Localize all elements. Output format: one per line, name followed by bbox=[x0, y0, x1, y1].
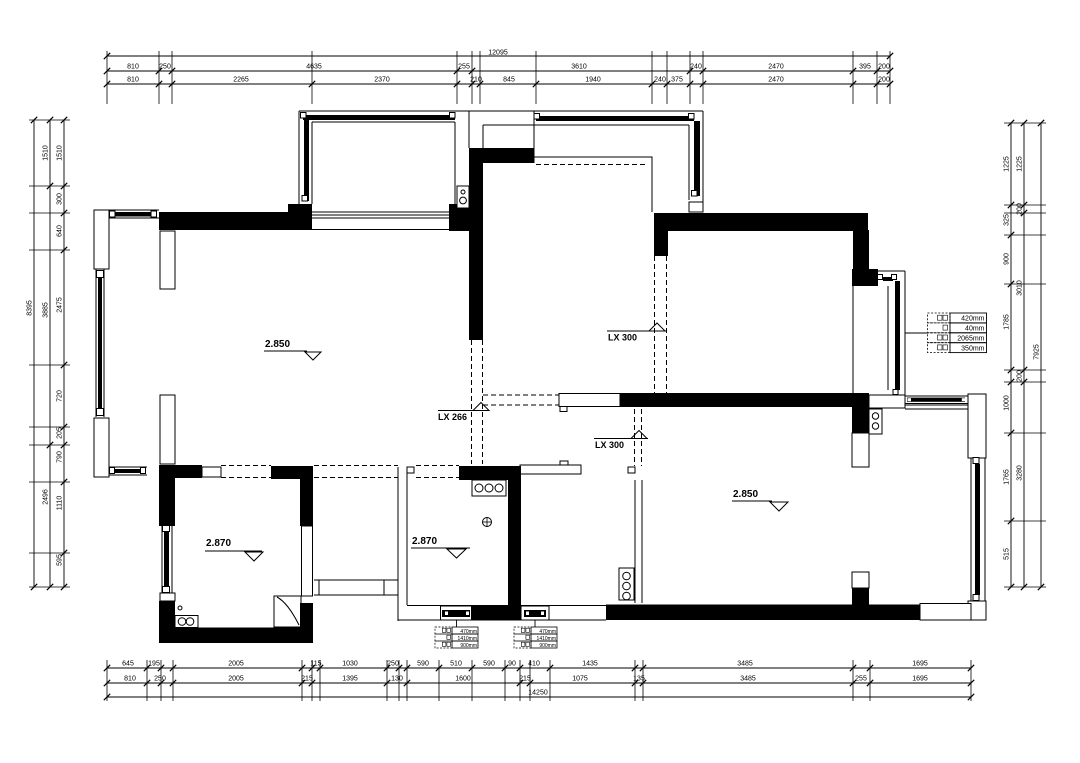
svg-text:1695: 1695 bbox=[912, 661, 928, 668]
svg-text:2496: 2496 bbox=[43, 489, 50, 505]
svg-text:1765: 1765 bbox=[1004, 469, 1011, 485]
svg-text:215: 215 bbox=[301, 676, 313, 683]
svg-text:845: 845 bbox=[503, 77, 515, 84]
svg-text:250: 250 bbox=[387, 661, 399, 668]
svg-text:12095: 12095 bbox=[488, 50, 508, 57]
svg-text:3010: 3010 bbox=[1017, 280, 1024, 296]
svg-text:410: 410 bbox=[528, 661, 540, 668]
svg-text:LX 300: LX 300 bbox=[608, 333, 637, 343]
svg-text:640: 640 bbox=[57, 225, 64, 237]
svg-text:900mm: 900mm bbox=[539, 643, 556, 649]
svg-text:2265: 2265 bbox=[233, 77, 249, 84]
svg-text:90: 90 bbox=[508, 661, 516, 668]
svg-text:900: 900 bbox=[1004, 253, 1011, 265]
svg-text:1785: 1785 bbox=[1004, 314, 1011, 330]
svg-text:115: 115 bbox=[310, 661, 321, 668]
svg-text:4635: 4635 bbox=[306, 64, 322, 71]
svg-text:2005: 2005 bbox=[228, 676, 244, 683]
svg-text:3280: 3280 bbox=[1017, 465, 1024, 481]
svg-text:1075: 1075 bbox=[572, 676, 588, 683]
svg-text:250: 250 bbox=[154, 676, 166, 683]
svg-text:200: 200 bbox=[1017, 370, 1024, 382]
svg-text:810: 810 bbox=[127, 64, 139, 71]
svg-text:215: 215 bbox=[519, 676, 531, 683]
svg-text:1395: 1395 bbox=[342, 676, 358, 683]
svg-text:135: 135 bbox=[633, 676, 645, 683]
svg-text:3610: 3610 bbox=[571, 64, 587, 71]
svg-text:1940: 1940 bbox=[585, 77, 601, 84]
svg-text:810: 810 bbox=[124, 676, 136, 683]
svg-text:3885: 3885 bbox=[43, 302, 50, 318]
svg-text:205: 205 bbox=[57, 427, 64, 439]
svg-text:420mm: 420mm bbox=[961, 316, 985, 323]
svg-text:375: 375 bbox=[671, 77, 683, 84]
svg-text:1600: 1600 bbox=[455, 676, 471, 683]
svg-text:14250: 14250 bbox=[528, 690, 548, 697]
svg-text:1435: 1435 bbox=[582, 661, 598, 668]
svg-text:40mm: 40mm bbox=[965, 326, 985, 333]
svg-text:255: 255 bbox=[855, 676, 867, 683]
svg-text:200: 200 bbox=[1017, 203, 1024, 215]
svg-text:2.850: 2.850 bbox=[265, 339, 290, 350]
svg-text:1030: 1030 bbox=[342, 661, 358, 668]
svg-text:350mm: 350mm bbox=[961, 345, 985, 352]
svg-text:2065mm: 2065mm bbox=[957, 335, 984, 342]
svg-text:1000: 1000 bbox=[1004, 395, 1011, 411]
svg-text:2475: 2475 bbox=[57, 297, 64, 313]
svg-text:900mm: 900mm bbox=[460, 643, 477, 649]
svg-text:210: 210 bbox=[470, 77, 482, 84]
svg-text:300: 300 bbox=[57, 193, 64, 205]
svg-text:2.850: 2.850 bbox=[733, 489, 758, 500]
svg-text:720: 720 bbox=[57, 390, 64, 402]
svg-text:240: 240 bbox=[654, 77, 666, 84]
svg-text:195: 195 bbox=[148, 661, 160, 668]
svg-text:LX 266: LX 266 bbox=[438, 412, 467, 422]
svg-text:515: 515 bbox=[1004, 548, 1011, 560]
svg-text:200: 200 bbox=[878, 77, 890, 84]
svg-text:1225: 1225 bbox=[1004, 156, 1011, 172]
svg-text:2470: 2470 bbox=[768, 64, 784, 71]
svg-text:2370: 2370 bbox=[374, 77, 390, 84]
svg-text:250: 250 bbox=[159, 64, 171, 71]
svg-text:1110: 1110 bbox=[57, 496, 64, 511]
svg-text:130: 130 bbox=[391, 676, 403, 683]
svg-text:590: 590 bbox=[417, 661, 429, 668]
svg-text:LX 300: LX 300 bbox=[595, 440, 624, 450]
svg-text:1225: 1225 bbox=[1017, 156, 1024, 172]
svg-text:2470: 2470 bbox=[768, 77, 784, 84]
svg-text:1510: 1510 bbox=[57, 145, 64, 161]
svg-text:1510: 1510 bbox=[43, 145, 50, 161]
svg-text:2.870: 2.870 bbox=[206, 538, 231, 549]
svg-text:810: 810 bbox=[127, 77, 139, 84]
svg-text:2005: 2005 bbox=[228, 661, 244, 668]
svg-text:325: 325 bbox=[1004, 214, 1011, 226]
svg-text:3485: 3485 bbox=[737, 661, 753, 668]
svg-text:510: 510 bbox=[450, 661, 462, 668]
svg-text:8395: 8395 bbox=[27, 300, 34, 316]
svg-text:240: 240 bbox=[690, 64, 702, 71]
svg-text:590: 590 bbox=[483, 661, 495, 668]
svg-text:645: 645 bbox=[122, 661, 134, 668]
svg-text:255: 255 bbox=[458, 64, 470, 71]
svg-text:595: 595 bbox=[57, 554, 64, 566]
svg-text:3485: 3485 bbox=[740, 676, 756, 683]
svg-text:395: 395 bbox=[859, 64, 871, 71]
svg-text:7925: 7925 bbox=[1034, 344, 1041, 360]
svg-text:790: 790 bbox=[57, 451, 64, 463]
svg-text:2.870: 2.870 bbox=[412, 536, 437, 547]
svg-text:1695: 1695 bbox=[912, 676, 928, 683]
svg-text:200: 200 bbox=[878, 64, 890, 71]
